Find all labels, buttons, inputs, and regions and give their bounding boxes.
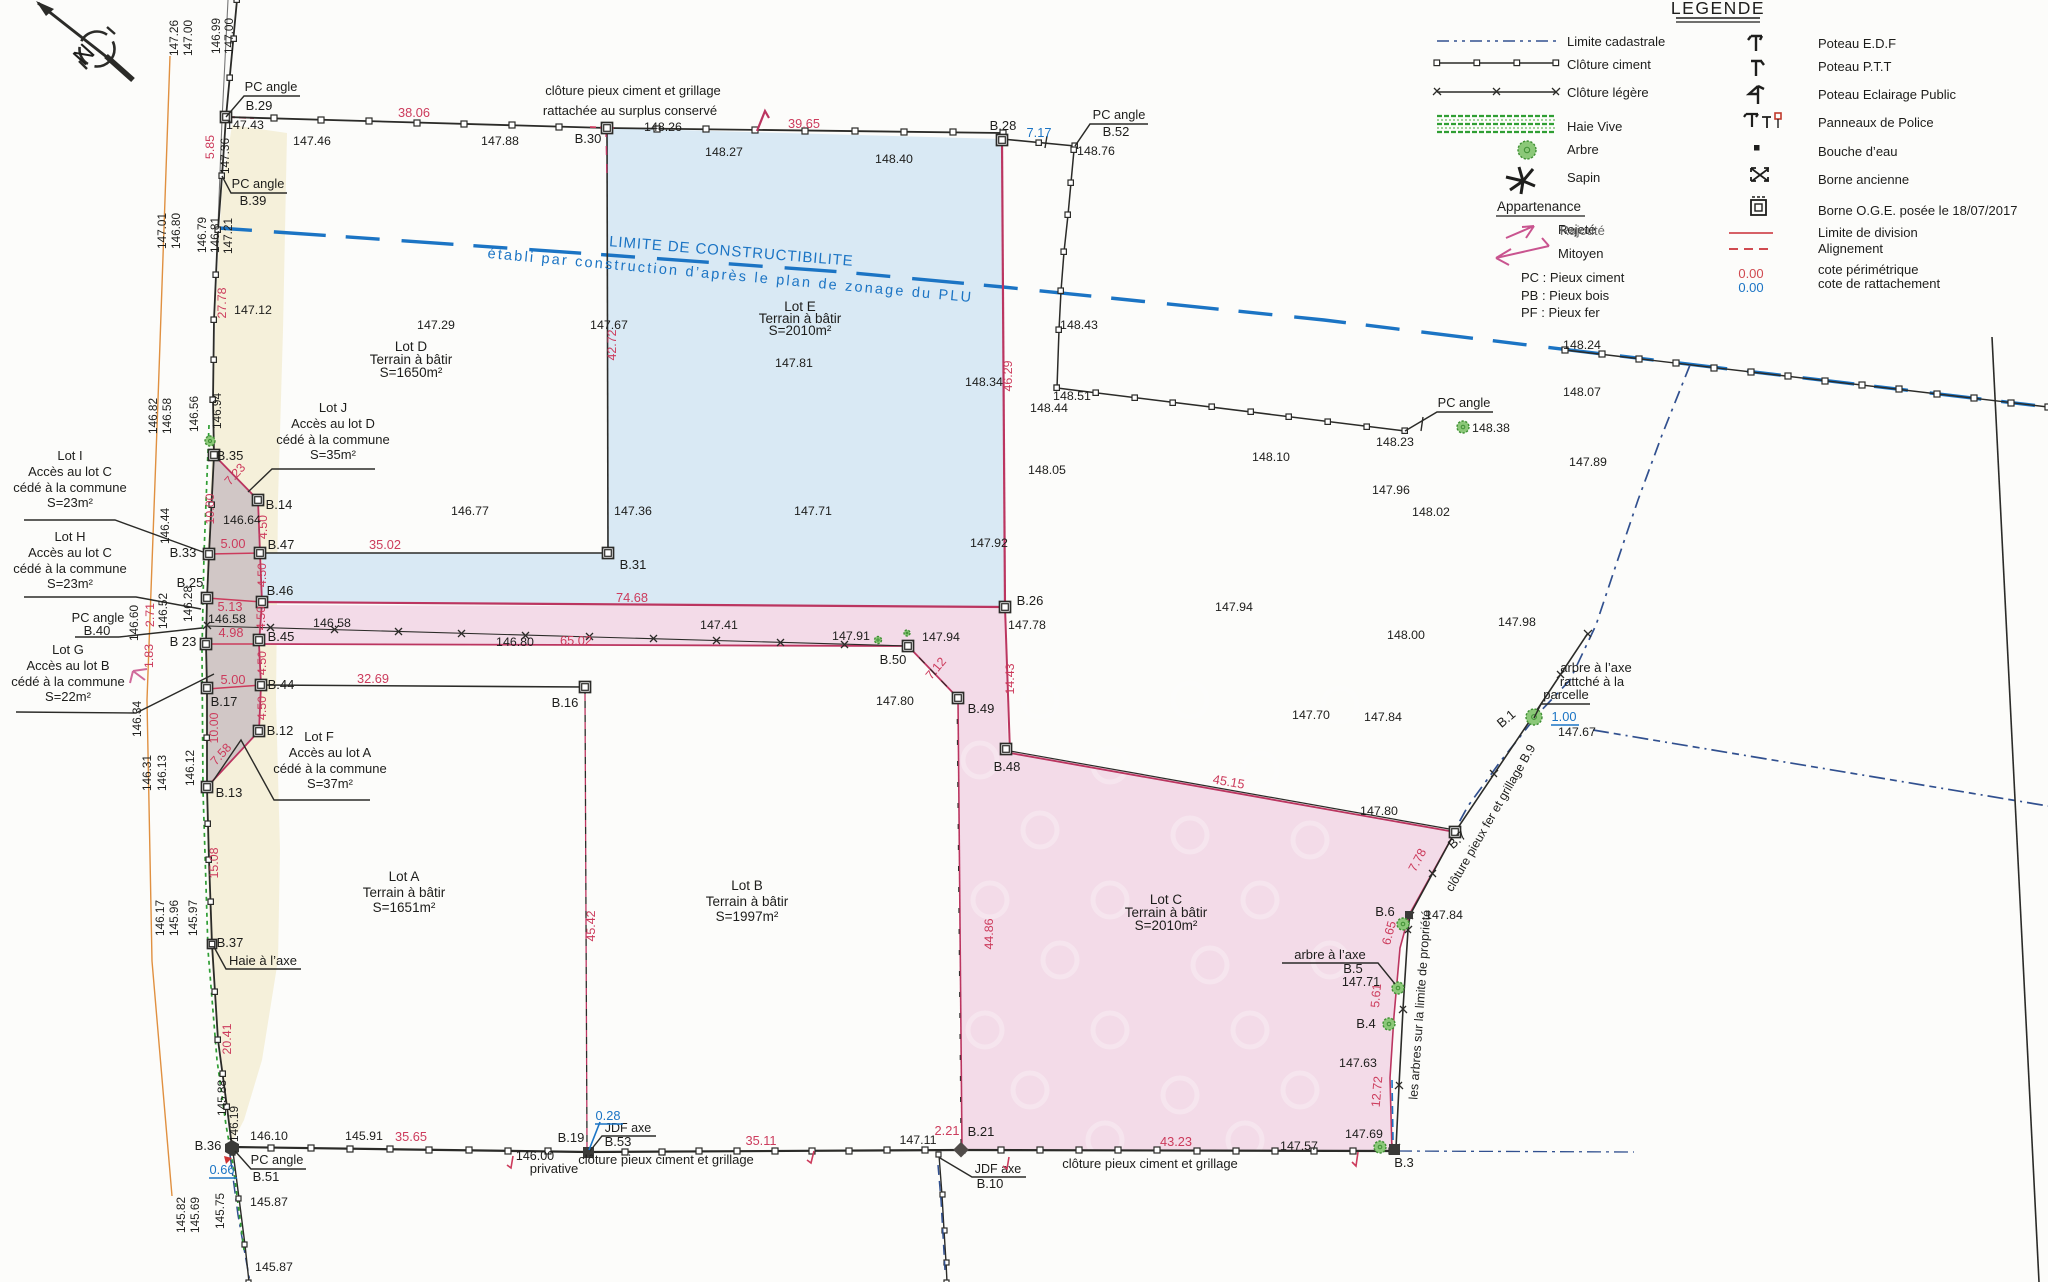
svg-text:20.41: 20.41 bbox=[220, 1023, 234, 1054]
svg-text:B.29: B.29 bbox=[246, 98, 273, 113]
svg-text:145.88: 145.88 bbox=[215, 1080, 229, 1117]
svg-text:B.16: B.16 bbox=[552, 695, 579, 710]
svg-text:46.29: 46.29 bbox=[1001, 360, 1015, 391]
svg-text:B.13: B.13 bbox=[216, 785, 243, 800]
svg-text:Poteau P.T.T: Poteau P.T.T bbox=[1818, 59, 1892, 74]
svg-text:146.13: 146.13 bbox=[155, 755, 169, 792]
svg-text:146.99: 146.99 bbox=[209, 18, 223, 54]
svg-text:147.43: 147.43 bbox=[226, 118, 264, 132]
svg-text:146.58: 146.58 bbox=[160, 398, 174, 435]
svg-text:2.21: 2.21 bbox=[935, 1123, 960, 1138]
svg-text:148.43: 148.43 bbox=[1060, 318, 1098, 332]
svg-text:146.31: 146.31 bbox=[140, 755, 154, 791]
svg-text:145.91: 145.91 bbox=[345, 1129, 383, 1143]
svg-text:147.41: 147.41 bbox=[700, 618, 738, 632]
svg-text:146.52: 146.52 bbox=[156, 593, 170, 629]
svg-text:147.21: 147.21 bbox=[221, 218, 235, 254]
svg-text:B.46: B.46 bbox=[267, 583, 294, 598]
svg-text:1.83: 1.83 bbox=[142, 644, 156, 668]
svg-text:arbre à l’axe: arbre à l’axe bbox=[1560, 660, 1632, 675]
svg-text:privative: privative bbox=[530, 1161, 578, 1176]
svg-text:B.45: B.45 bbox=[268, 629, 295, 644]
svg-text:Lot H: Lot H bbox=[54, 529, 85, 544]
svg-text:5.61: 5.61 bbox=[1368, 983, 1384, 1008]
svg-text:Accès au lot C: Accès au lot C bbox=[28, 464, 112, 479]
svg-text:Bouche d’eau: Bouche d’eau bbox=[1818, 144, 1898, 159]
svg-text:S=37m²: S=37m² bbox=[307, 776, 354, 791]
svg-text:146.94: 146.94 bbox=[210, 393, 224, 430]
svg-text:clôture pieux ciment et grilla: clôture pieux ciment et grillage bbox=[1062, 1156, 1238, 1171]
svg-text:146.12: 146.12 bbox=[183, 750, 197, 786]
svg-text:32.69: 32.69 bbox=[357, 671, 389, 686]
svg-text:Haie Vive: Haie Vive bbox=[1567, 119, 1622, 134]
svg-text:147.94: 147.94 bbox=[1215, 600, 1253, 614]
svg-text:147.80: 147.80 bbox=[1360, 804, 1398, 818]
svg-text:10.00: 10.00 bbox=[203, 493, 217, 524]
svg-text:clôture pieux ciment et grilla: clôture pieux ciment et grillage bbox=[578, 1152, 754, 1167]
svg-text:145.69: 145.69 bbox=[188, 1197, 202, 1233]
svg-text:Limite cadastrale: Limite cadastrale bbox=[1567, 34, 1665, 49]
svg-text:Mitoyen: Mitoyen bbox=[1558, 246, 1604, 261]
svg-text:B.44: B.44 bbox=[268, 677, 295, 692]
svg-text:clôture pieux ciment et grilla: clôture pieux ciment et grillage bbox=[545, 83, 721, 98]
svg-text:cédé à la commune: cédé à la commune bbox=[273, 761, 386, 776]
svg-text:35.11: 35.11 bbox=[745, 1133, 776, 1148]
svg-text:148.27: 148.27 bbox=[705, 145, 743, 159]
svg-text:148.76: 148.76 bbox=[1077, 144, 1115, 158]
svg-text:0.66: 0.66 bbox=[210, 1162, 235, 1177]
svg-text:74.68: 74.68 bbox=[616, 590, 648, 605]
svg-text:Limite de division: Limite de division bbox=[1818, 225, 1918, 240]
svg-text:147.57: 147.57 bbox=[1280, 1139, 1318, 1153]
svg-text:147.01: 147.01 bbox=[155, 213, 169, 249]
svg-text:PF : Pieux fer: PF : Pieux fer bbox=[1521, 305, 1600, 320]
svg-text:44.86: 44.86 bbox=[982, 918, 996, 949]
svg-text:27.78: 27.78 bbox=[215, 287, 229, 318]
svg-text:145.75: 145.75 bbox=[213, 1193, 227, 1230]
svg-text:rattachée au surplus conservé: rattachée au surplus conservé bbox=[543, 103, 717, 118]
svg-text:4.50: 4.50 bbox=[254, 606, 268, 630]
svg-text:146.56: 146.56 bbox=[187, 396, 201, 433]
svg-text:Accès au lot D: Accès au lot D bbox=[291, 416, 375, 431]
svg-text:15.08: 15.08 bbox=[207, 847, 221, 878]
svg-text:146.44: 146.44 bbox=[158, 508, 172, 545]
svg-text:Haie à l’axe: Haie à l’axe bbox=[229, 953, 297, 968]
svg-text:147.80: 147.80 bbox=[876, 694, 914, 708]
svg-text:Arbre: Arbre bbox=[1567, 142, 1599, 157]
svg-text:147.67: 147.67 bbox=[1558, 725, 1596, 739]
svg-text:5.13: 5.13 bbox=[218, 599, 243, 614]
svg-text:B.19: B.19 bbox=[558, 1130, 585, 1145]
svg-text:147.92: 147.92 bbox=[970, 536, 1008, 550]
svg-text:S=1650m²: S=1650m² bbox=[380, 365, 443, 380]
svg-text:JDF axe: JDF axe bbox=[605, 1121, 652, 1135]
svg-text:arbre à l’axe: arbre à l’axe bbox=[1294, 947, 1366, 962]
svg-text:B.6: B.6 bbox=[1375, 904, 1395, 919]
svg-text:B.26: B.26 bbox=[1017, 593, 1044, 608]
svg-text:Lot G: Lot G bbox=[52, 642, 84, 657]
svg-text:146.82: 146.82 bbox=[146, 398, 160, 434]
svg-text:Terrain à bâtir: Terrain à bâtir bbox=[706, 894, 789, 909]
svg-text:cédé à la commune: cédé à la commune bbox=[11, 674, 124, 689]
svg-text:147.81: 147.81 bbox=[775, 356, 813, 370]
svg-text:S=2010m²: S=2010m² bbox=[769, 323, 832, 338]
svg-text:PC angle: PC angle bbox=[251, 1152, 304, 1167]
svg-text:Borne O.G.E. posée le 18/07/20: Borne O.G.E. posée le 18/07/2017 bbox=[1818, 203, 2017, 218]
svg-text:cote périmétrique: cote périmétrique bbox=[1818, 262, 1918, 277]
svg-text:B.39: B.39 bbox=[240, 193, 267, 208]
svg-text:147.00: 147.00 bbox=[181, 20, 195, 57]
svg-text:B.47: B.47 bbox=[268, 537, 295, 552]
svg-text:B.37: B.37 bbox=[217, 935, 244, 950]
svg-text:145.96: 145.96 bbox=[167, 900, 181, 937]
svg-text:Lot F: Lot F bbox=[304, 729, 334, 744]
svg-text:147.36: 147.36 bbox=[614, 504, 652, 518]
svg-text:PC angle: PC angle bbox=[1438, 395, 1491, 410]
svg-text:147.96: 147.96 bbox=[1372, 483, 1410, 497]
svg-text:S=23m²: S=23m² bbox=[47, 495, 94, 510]
svg-text:12.72: 12.72 bbox=[1369, 1075, 1386, 1107]
svg-text:B.50: B.50 bbox=[880, 652, 907, 667]
svg-text:B.3: B.3 bbox=[1394, 1155, 1414, 1170]
svg-text:10.00: 10.00 bbox=[207, 712, 221, 743]
svg-text:Terrain à bâtir: Terrain à bâtir bbox=[363, 885, 446, 900]
svg-text:146.80: 146.80 bbox=[169, 213, 183, 250]
svg-text:146.80: 146.80 bbox=[496, 635, 534, 649]
svg-text:PB : Pieux bois: PB : Pieux bois bbox=[1521, 288, 1610, 303]
svg-text:7.17: 7.17 bbox=[1027, 125, 1052, 140]
svg-text:147.11: 147.11 bbox=[900, 1133, 937, 1147]
svg-text:147.26: 147.26 bbox=[167, 20, 181, 57]
svg-text:148.38: 148.38 bbox=[1472, 421, 1510, 435]
svg-text:Accès au lot B: Accès au lot B bbox=[26, 658, 109, 673]
svg-text:43.23: 43.23 bbox=[1160, 1134, 1192, 1149]
svg-text:148.34: 148.34 bbox=[965, 375, 1003, 389]
svg-text:cédé à la commune: cédé à la commune bbox=[13, 561, 126, 576]
svg-text:B.17: B.17 bbox=[211, 694, 238, 709]
svg-text:Clôture ciment: Clôture ciment bbox=[1567, 57, 1651, 72]
svg-text:145.82: 145.82 bbox=[174, 1197, 188, 1233]
svg-text:S=1997m²: S=1997m² bbox=[716, 909, 779, 924]
svg-text:B.53: B.53 bbox=[605, 1134, 632, 1149]
svg-text:S=22m²: S=22m² bbox=[45, 689, 92, 704]
svg-text:4.50: 4.50 bbox=[255, 563, 269, 587]
svg-text:0.28: 0.28 bbox=[596, 1108, 621, 1123]
svg-text:65.02: 65.02 bbox=[560, 633, 592, 648]
svg-text:147.89: 147.89 bbox=[1569, 455, 1607, 469]
svg-text:14.43: 14.43 bbox=[1003, 663, 1017, 694]
svg-text:35.02: 35.02 bbox=[369, 537, 401, 552]
svg-text:45.42: 45.42 bbox=[584, 910, 598, 941]
svg-text:Borne ancienne: Borne ancienne bbox=[1818, 172, 1909, 187]
svg-text:147.36: 147.36 bbox=[218, 138, 232, 175]
svg-text:Alignement: Alignement bbox=[1818, 241, 1883, 256]
svg-text:145.87: 145.87 bbox=[255, 1260, 293, 1274]
svg-text:Accès au lot C: Accès au lot C bbox=[28, 545, 112, 560]
svg-text:4.50: 4.50 bbox=[256, 515, 270, 539]
svg-text:146.10: 146.10 bbox=[250, 1129, 288, 1143]
svg-text:Lot A: Lot A bbox=[389, 869, 420, 884]
svg-text:147.00: 147.00 bbox=[222, 18, 236, 55]
svg-text:147.46: 147.46 bbox=[293, 134, 331, 148]
svg-text:B.36: B.36 bbox=[195, 1138, 222, 1153]
svg-text:B.10: B.10 bbox=[977, 1176, 1004, 1191]
svg-text:1.00: 1.00 bbox=[1552, 709, 1577, 724]
svg-text:Sapin: Sapin bbox=[1567, 170, 1600, 185]
svg-text:S=2010m²: S=2010m² bbox=[1135, 918, 1198, 933]
svg-text:B.14: B.14 bbox=[266, 497, 293, 512]
svg-text:B.40: B.40 bbox=[84, 623, 111, 638]
svg-text:147.84: 147.84 bbox=[1364, 710, 1402, 724]
svg-text:146.34: 146.34 bbox=[130, 701, 144, 738]
svg-text:B.31: B.31 bbox=[620, 557, 647, 572]
svg-text:Accès au lot A: Accès au lot A bbox=[289, 745, 372, 760]
svg-text:148.07: 148.07 bbox=[1563, 385, 1601, 399]
svg-text:147.12: 147.12 bbox=[234, 303, 272, 317]
svg-text:Lot B: Lot B bbox=[731, 878, 763, 893]
svg-text:Lot I: Lot I bbox=[57, 448, 82, 463]
svg-text:35.65: 35.65 bbox=[395, 1129, 427, 1144]
svg-text:Clôture légère: Clôture légère bbox=[1567, 85, 1649, 100]
svg-text:148.26: 148.26 bbox=[644, 120, 682, 134]
svg-text:42.72: 42.72 bbox=[605, 329, 619, 360]
svg-text:5.00: 5.00 bbox=[221, 536, 246, 551]
svg-text:B.5: B.5 bbox=[1343, 961, 1363, 976]
svg-text:B.35: B.35 bbox=[217, 448, 244, 463]
svg-text:B.49: B.49 bbox=[968, 701, 995, 716]
svg-text:B.12: B.12 bbox=[267, 723, 294, 738]
svg-text:147.63: 147.63 bbox=[1339, 1056, 1377, 1070]
svg-text:148.23: 148.23 bbox=[1376, 435, 1414, 449]
svg-text:147.70: 147.70 bbox=[1292, 708, 1330, 722]
svg-text:B.33: B.33 bbox=[170, 545, 197, 560]
svg-text:148.44: 148.44 bbox=[1030, 401, 1068, 415]
svg-text:147.94: 147.94 bbox=[922, 630, 960, 644]
svg-text:147.78: 147.78 bbox=[1008, 618, 1046, 632]
svg-text:PC angle: PC angle bbox=[245, 79, 298, 94]
svg-text:B.30: B.30 bbox=[575, 131, 602, 146]
svg-text:PC angle: PC angle bbox=[1093, 107, 1146, 122]
svg-text:147.69: 147.69 bbox=[1345, 1127, 1383, 1141]
svg-text:148.40: 148.40 bbox=[875, 152, 913, 166]
svg-text:5.00: 5.00 bbox=[221, 672, 246, 687]
svg-text:Panneaux de Police: Panneaux de Police bbox=[1818, 115, 1934, 130]
svg-text:LEGENDE: LEGENDE bbox=[1671, 0, 1765, 18]
svg-text:JDF axe: JDF axe bbox=[975, 1162, 1022, 1176]
svg-text:146.81: 146.81 bbox=[208, 217, 222, 253]
svg-text:Poteau Eclairage Public: Poteau Eclairage Public bbox=[1818, 87, 1957, 102]
svg-text:146.58: 146.58 bbox=[313, 616, 351, 630]
svg-text:147.71: 147.71 bbox=[794, 504, 832, 518]
svg-text:0.00: 0.00 bbox=[1738, 280, 1763, 295]
svg-text:S=35m²: S=35m² bbox=[310, 447, 357, 462]
svg-text:S=1651m²: S=1651m² bbox=[373, 900, 436, 915]
svg-text:147.29: 147.29 bbox=[417, 318, 455, 332]
svg-text:4.98: 4.98 bbox=[219, 625, 244, 640]
svg-text:148.00: 148.00 bbox=[1387, 628, 1425, 642]
svg-text:parcelle: parcelle bbox=[1543, 687, 1589, 702]
svg-text:cédé à la commune: cédé à la commune bbox=[276, 432, 389, 447]
svg-text:146.28: 146.28 bbox=[181, 586, 195, 623]
svg-text:PC : Pieux ciment: PC : Pieux ciment bbox=[1521, 270, 1625, 285]
svg-text:Appartenance: Appartenance bbox=[1497, 199, 1581, 214]
svg-text:B.48: B.48 bbox=[994, 759, 1021, 774]
svg-text:Poteau E.D.F: Poteau E.D.F bbox=[1818, 36, 1896, 51]
svg-text:4.50: 4.50 bbox=[255, 651, 269, 675]
svg-text:B.21: B.21 bbox=[968, 1124, 995, 1139]
svg-text:39.65: 39.65 bbox=[788, 116, 820, 131]
svg-text:B.28: B.28 bbox=[990, 118, 1017, 133]
svg-text:148.24: 148.24 bbox=[1563, 338, 1601, 352]
svg-text:Lot J: Lot J bbox=[319, 400, 347, 415]
svg-text:cédé à la commune: cédé à la commune bbox=[13, 480, 126, 495]
svg-text:145.97: 145.97 bbox=[186, 900, 200, 936]
svg-text:4.50: 4.50 bbox=[255, 696, 269, 720]
svg-text:38.06: 38.06 bbox=[398, 105, 430, 120]
svg-text:148.02: 148.02 bbox=[1412, 505, 1450, 519]
svg-text:2.71: 2.71 bbox=[143, 603, 157, 627]
svg-text:5.85: 5.85 bbox=[203, 135, 217, 159]
svg-text:B.4: B.4 bbox=[1356, 1016, 1376, 1031]
svg-text:Rajouté: Rajouté bbox=[1560, 223, 1605, 238]
svg-text:S=23m²: S=23m² bbox=[47, 576, 94, 591]
svg-text:146.19: 146.19 bbox=[227, 1106, 241, 1142]
svg-text:147.84: 147.84 bbox=[1425, 908, 1463, 922]
svg-text:147.88: 147.88 bbox=[481, 134, 519, 148]
svg-text:148.05: 148.05 bbox=[1028, 463, 1066, 477]
svg-text:B.51: B.51 bbox=[253, 1169, 280, 1184]
svg-text:147.98: 147.98 bbox=[1498, 615, 1536, 629]
svg-text:B 23: B 23 bbox=[170, 634, 197, 649]
svg-text:148.10: 148.10 bbox=[1252, 450, 1290, 464]
svg-text:PC angle: PC angle bbox=[232, 176, 285, 191]
svg-text:B.52: B.52 bbox=[1103, 124, 1130, 139]
svg-text:146.77: 146.77 bbox=[451, 504, 489, 518]
svg-text:146.58: 146.58 bbox=[208, 612, 246, 626]
svg-text:146.17: 146.17 bbox=[153, 900, 167, 936]
svg-text:145.87: 145.87 bbox=[250, 1195, 288, 1209]
svg-text:147.91: 147.91 bbox=[832, 629, 870, 643]
svg-text:0.00: 0.00 bbox=[1738, 266, 1763, 281]
svg-text:146.79: 146.79 bbox=[195, 217, 209, 253]
svg-text:146.60: 146.60 bbox=[127, 605, 141, 642]
svg-text:cote de rattachement: cote de rattachement bbox=[1818, 276, 1941, 291]
